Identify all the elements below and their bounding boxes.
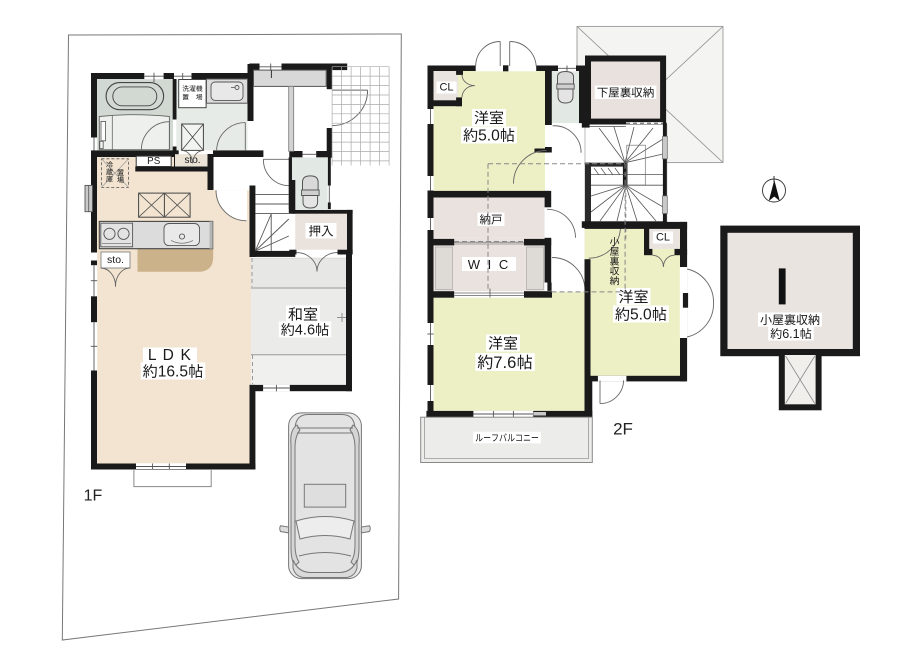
svg-text:sto.: sto. [107, 254, 124, 266]
svg-text:5.0: 5.0 [630, 306, 652, 323]
svg-text:16.5: 16.5 [158, 363, 189, 380]
svg-text:2F: 2F [613, 420, 633, 439]
svg-text:7.6: 7.6 [493, 353, 516, 372]
svg-text:L D K: L D K [148, 347, 192, 364]
svg-text:5.0: 5.0 [478, 127, 500, 144]
svg-text:6.1: 6.1 [782, 327, 799, 341]
svg-text:PS: PS [147, 156, 161, 167]
svg-text:4.6: 4.6 [295, 323, 315, 339]
svg-text:CL: CL [439, 82, 453, 94]
svg-text:W I C: W I C [468, 257, 511, 272]
svg-text:1F: 1F [84, 488, 103, 505]
svg-text:CL: CL [656, 232, 670, 244]
